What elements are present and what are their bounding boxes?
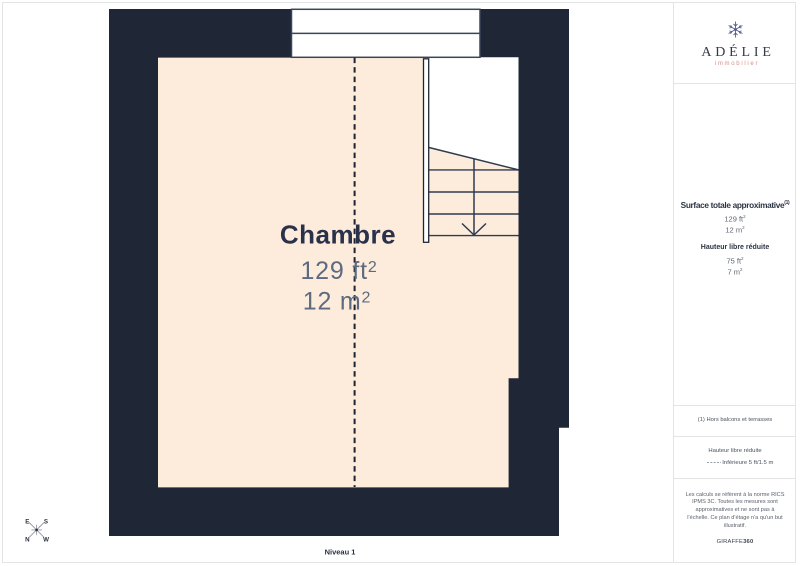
svg-text:129 ft2: 129 ft2 — [300, 257, 377, 285]
svg-text:Niveau 1: Niveau 1 — [325, 548, 356, 557]
svg-text:12 m2: 12 m2 — [303, 288, 371, 316]
svg-text:Chambre: Chambre — [280, 220, 396, 250]
svg-text:E: E — [25, 519, 29, 526]
svg-text:N: N — [25, 536, 30, 543]
svg-text:W: W — [43, 536, 49, 543]
svg-text:S: S — [44, 519, 48, 526]
